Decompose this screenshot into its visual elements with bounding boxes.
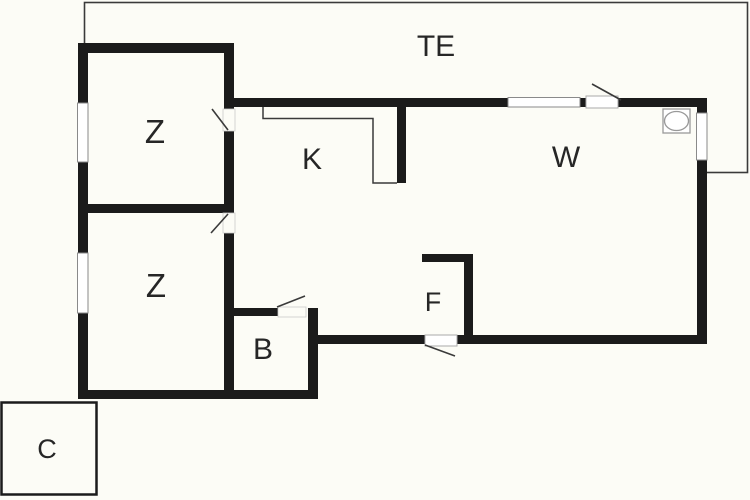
door-gap-bathroom [278,307,306,317]
wall-bedroom-divider [88,204,224,213]
window-left-top [78,103,89,162]
window-top [508,98,580,108]
door-gap-bedroom-bottom [223,213,235,233]
wall-exterior-left [78,43,88,399]
room-label-entrance: F [425,287,442,317]
room-label-bedroom-bottom: Z [146,267,166,304]
room-label-carport: C [37,434,57,464]
wall-exterior-bottom-left [78,390,318,399]
door-gap-bedroom-top [223,109,235,131]
wall-kitchen-living-partial [397,103,406,183]
wall-entrance-right [464,254,473,341]
wall-exterior-top-left [78,43,234,53]
floorplan-canvas: TE Z Z K W B F C [0,0,750,500]
room-label-kitchen: K [302,143,322,176]
room-label-terrace: TE [417,30,455,63]
window-right [697,113,708,160]
wall-bathroom-top [224,308,278,316]
wall-exterior-top-main [224,98,707,107]
stove-icon-frame [663,109,690,133]
window-left-bottom [78,253,89,313]
room-label-bedroom-top: Z [145,113,165,150]
wall-bathroom-right-step [308,308,318,399]
floorplan-drawing: TE Z Z K W B F C [0,0,750,500]
stove-icon [663,109,690,133]
door-gap-terrace [586,96,618,108]
door-gap-entrance [425,335,457,346]
room-label-living-room: W [552,141,581,174]
wall-exterior-bottom-right [308,335,707,344]
room-label-bathroom: B [253,333,273,366]
